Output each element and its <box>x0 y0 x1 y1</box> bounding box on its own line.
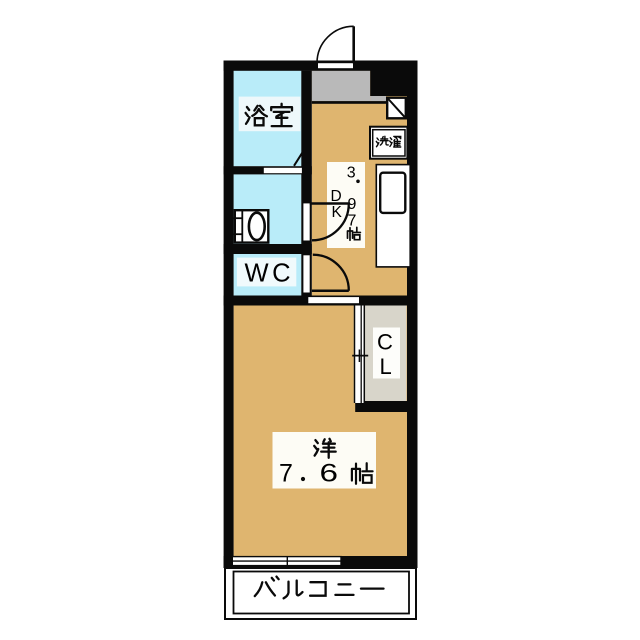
svg-text:7: 7 <box>348 213 357 230</box>
svg-text:K: K <box>332 204 343 221</box>
svg-text:L: L <box>380 354 392 379</box>
svg-text:3: 3 <box>347 165 356 182</box>
svg-text:C: C <box>377 330 393 355</box>
svg-text:6: 6 <box>320 460 339 488</box>
svg-text:WC: WC <box>245 260 294 288</box>
svg-text:7: 7 <box>279 460 293 488</box>
